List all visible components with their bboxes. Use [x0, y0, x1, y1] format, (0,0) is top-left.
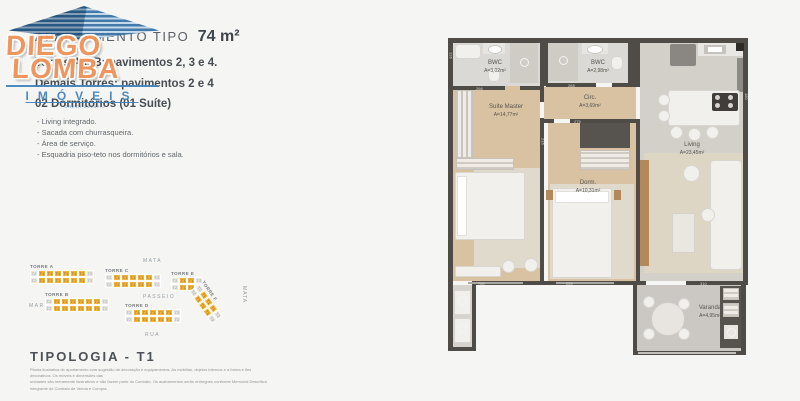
dimension-label: 180: [744, 93, 748, 100]
unit-cell: T2: [45, 298, 53, 305]
cooktop-burner: [728, 103, 733, 108]
dimension-label: 310: [700, 282, 707, 286]
wall: [741, 285, 746, 355]
page: APARTAMENTO TIPO 74 m² Torres A e B: pav…: [0, 0, 800, 401]
unit-cell: T1: [145, 281, 153, 288]
unit-cell: T1: [179, 284, 187, 291]
ottoman: [701, 208, 715, 222]
legal-disclaimer: Planta ilustrativa do apartamento com su…: [30, 367, 272, 392]
feature-list: - Living integrado. - Sacada com churras…: [37, 116, 184, 160]
feature-item: - Sacada com churrasqueira.: [37, 127, 184, 138]
feature-item: - Living integrado.: [37, 116, 184, 127]
logo-word-2: LOMBA: [11, 56, 164, 82]
unit-cell: T1: [38, 270, 46, 277]
unit-cell: T1: [38, 277, 46, 284]
unit-cell: T2: [101, 305, 109, 312]
unit-cell: T1: [149, 316, 157, 323]
shaft: [736, 43, 744, 51]
unit-cell: T1: [165, 309, 173, 316]
area-label-passeio: PASSEIO: [143, 294, 175, 300]
unit-cell: T1: [54, 270, 62, 277]
unit-cell: T1: [78, 270, 86, 277]
window: [556, 282, 614, 284]
wall: [544, 119, 554, 123]
unit-cell: T1: [77, 305, 85, 312]
suite-wardrobe: [455, 90, 473, 158]
suite-desk-chair: [502, 260, 515, 273]
dimension-label: 268: [568, 84, 575, 88]
unit-cell: T1: [121, 274, 129, 281]
area-label-mata-top: MATA: [143, 258, 162, 264]
typology-title: TIPOLOGIA - T1: [30, 349, 156, 364]
unit-cell: T2: [30, 270, 38, 277]
unit-cell: T1: [129, 281, 137, 288]
room-label-living: LivingA=23,45m²: [666, 142, 718, 156]
wall: [636, 119, 640, 285]
dorm-closet: [580, 123, 630, 148]
wall: [472, 285, 476, 347]
unit-cell: T2: [30, 277, 38, 284]
dining-chair: [670, 126, 683, 139]
tower-c: TORRE CT2T1T1T1T1T1T2T2T1T1T1T1T1T2: [105, 268, 161, 288]
wall: [540, 86, 544, 102]
area-label-rua: RUA: [145, 332, 160, 338]
feature-item: - Área de serviço.: [37, 138, 184, 149]
window: [638, 352, 736, 354]
logo-imoveis: IMÓVEIS: [6, 85, 158, 103]
wall: [448, 38, 453, 351]
cooktop-burner: [728, 95, 733, 100]
varanda-chair: [678, 328, 690, 340]
unit-cell: T1: [70, 270, 78, 277]
unit-cell: T1: [61, 305, 69, 312]
unit-cell: T1: [113, 281, 121, 288]
unit-cell: T1: [121, 281, 129, 288]
unit-cell: T1: [69, 305, 77, 312]
area-label-mar: MAR: [29, 303, 45, 309]
unit-cell: T2: [171, 277, 179, 284]
suite-desk: [455, 266, 501, 277]
unit-cell: T1: [141, 316, 149, 323]
varanda-louver: [723, 288, 739, 300]
bwc2-sink: [587, 45, 603, 54]
unit-cell: T1: [129, 274, 137, 281]
bathtub: [455, 44, 481, 59]
area-label-mata-right: MATA: [241, 286, 247, 303]
tower-d: TORRE DT2T1T1T1T1T1T2T2T1T1T1T1T1T2: [125, 303, 181, 323]
dryer-door: [458, 324, 467, 333]
disclaimer-line: Planta ilustrativa do apartamento com su…: [30, 367, 272, 379]
unit-cell: T1: [149, 309, 157, 316]
tv-rack: [640, 160, 649, 266]
room-label-circ: Circ.A=3,69m²: [560, 95, 620, 109]
title-area: 74 m²: [198, 28, 240, 45]
unit-cell: T1: [77, 298, 85, 305]
bwc2-shower-drain: [559, 56, 568, 65]
room-label-suite: Suíte MasterA=14,77m²: [476, 104, 536, 118]
wall: [628, 38, 640, 87]
unit-cell: T1: [85, 305, 93, 312]
unit-cell: T1: [62, 270, 70, 277]
cooktop: [712, 93, 738, 111]
unit-cell: T1: [93, 298, 101, 305]
unit-cell: T1: [85, 298, 93, 305]
unit-cell: T2: [45, 305, 53, 312]
dining-chair: [688, 128, 701, 141]
dimension-label: 266: [476, 87, 483, 91]
kitchen-cabinet: [670, 44, 696, 66]
unit-cell: T1: [62, 277, 70, 284]
room-label-bwc1: BWCA=3,02m²: [465, 60, 525, 74]
dimension-label: 275: [574, 120, 581, 124]
wall: [686, 281, 748, 285]
disclaimer-line: unidades são meramente ilustrativos e nã…: [30, 379, 272, 391]
room-label-bwc2: BWCA=2,98m²: [568, 60, 628, 74]
unit-cell: T2: [173, 309, 181, 316]
dining-chair: [706, 126, 719, 139]
unit-cell: T2: [171, 284, 179, 291]
unit-cell: T1: [61, 298, 69, 305]
unit-cell: T1: [157, 309, 165, 316]
wall: [640, 281, 646, 285]
site-plan: MATA MAR PASSEIO RUA MATA TORRE AT2T1T1T…: [25, 256, 260, 350]
unit-cell: T1: [53, 305, 61, 312]
cooktop-burner: [715, 103, 720, 108]
unit-cell: T2: [153, 274, 161, 281]
wall: [540, 43, 548, 86]
unit-cell: T2: [173, 316, 181, 323]
unit-cell: T2: [86, 277, 94, 284]
unit-cell: T1: [54, 277, 62, 284]
unit-cell: T1: [113, 274, 121, 281]
floor-plan: BWCA=3,02m² BWCA=2,98m² Suíte MasterA=14…: [448, 38, 750, 366]
unit-cell: T1: [69, 298, 77, 305]
unit-cell: T2: [105, 281, 113, 288]
unit-cell: T1: [93, 305, 101, 312]
suite-bed-pillows: [457, 176, 467, 236]
room-label-varanda: VarandaA=4,95m²: [684, 305, 736, 319]
unit-cell: T1: [179, 277, 187, 284]
unit-cell: T2: [86, 270, 94, 277]
unit-cell: T1: [46, 270, 54, 277]
dining-chair: [658, 110, 670, 122]
diego-lomba-logo: DIEGO LOMBA IMÓVEIS CRECI 29147-J: [6, 6, 164, 109]
dimension-label: 126: [449, 52, 453, 59]
suite-pouf: [524, 258, 538, 272]
unit-cell: T2: [101, 298, 109, 305]
wall: [743, 38, 748, 285]
bwc1-sink: [488, 45, 502, 54]
varanda-chair: [643, 296, 655, 308]
unit-cell: T2: [125, 309, 133, 316]
logo-creci: CRECI 29147-J: [6, 104, 164, 109]
dimension-label: 255: [566, 282, 573, 286]
room-label-dorm: Dorm.A=10,31m²: [558, 180, 618, 194]
feature-item: - Esquadria piso-teto nos dormitórios e …: [37, 149, 184, 160]
unit-cell: T2: [125, 316, 133, 323]
wall: [448, 38, 748, 43]
dorm-wardrobe: [580, 150, 630, 170]
cooktop-burner: [715, 95, 720, 100]
wall: [633, 285, 637, 351]
tower-f: TORRE FT2T1T1T1T2T2T1T1T1T2: [189, 280, 228, 324]
window: [468, 282, 523, 284]
unit-cell: T1: [137, 274, 145, 281]
varanda-sink-drain: [727, 328, 736, 337]
wall: [448, 347, 476, 351]
tower-b: TORRE BT2T1T1T1T1T1T1T2T2T1T1T1T1T1T1T2: [45, 292, 109, 312]
kitchen-sink-basin: [708, 47, 722, 52]
tower-a: TORRE AT2T1T1T1T1T1T1T2T2T1T1T1T1T1T1T2: [30, 264, 94, 284]
unit-cell: T1: [157, 316, 165, 323]
unit-cell: T1: [133, 309, 141, 316]
unit-cell: T1: [70, 277, 78, 284]
dorm-nightstand: [546, 190, 553, 200]
washer-door: [458, 296, 467, 305]
unit-cell: T1: [137, 281, 145, 288]
unit-cell: T1: [141, 309, 149, 316]
unit-cell: T1: [187, 277, 195, 284]
suite-bench: [456, 158, 514, 170]
unit-cell: T1: [78, 277, 86, 284]
unit-cell: T1: [145, 274, 153, 281]
unit-cell: T1: [53, 298, 61, 305]
dimension-label: 760: [478, 282, 485, 286]
varanda-chair: [643, 328, 655, 340]
dimension-label: 216: [541, 138, 545, 145]
armchair: [683, 165, 700, 182]
console-table: [672, 213, 695, 253]
unit-cell: T2: [105, 274, 113, 281]
unit-cell: T1: [133, 316, 141, 323]
unit-cell: T1: [46, 277, 54, 284]
unit-cell: T1: [165, 316, 173, 323]
unit-cell: T2: [153, 281, 161, 288]
dining-chair: [658, 94, 670, 106]
